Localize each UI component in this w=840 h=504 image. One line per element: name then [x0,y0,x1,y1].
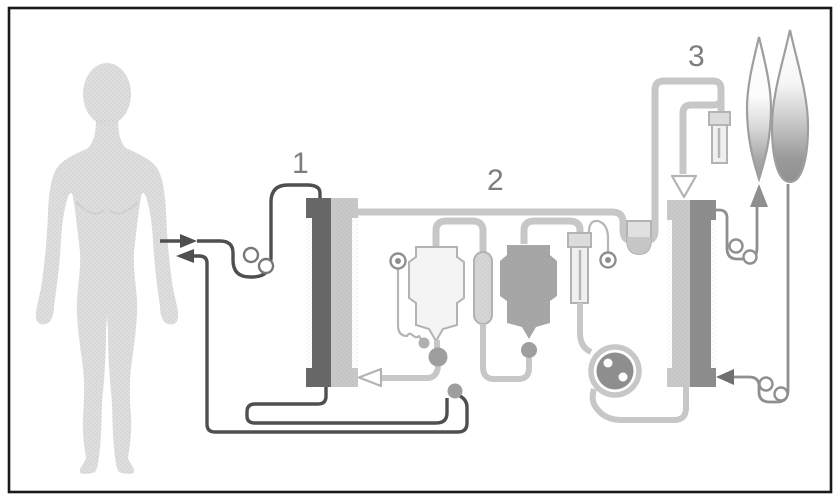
pump-guide-roller-icon [730,240,743,253]
pump-roller-icon [619,373,628,382]
pump-roller-icon [604,359,613,368]
label-step3: 3 [688,40,705,73]
inline-cup-chamber [627,221,651,254]
pump-guide-roller-icon [744,251,757,264]
return-junction-connector [448,384,463,399]
drip-chamber [568,233,591,303]
roller-clamp [521,342,537,358]
pressure-cartridge [709,112,730,163]
roller-clamp [429,348,448,367]
figure-canvas: 1 2 3 [0,0,840,504]
diagram-svg: 1 2 3 [0,0,840,504]
secondary-filter-column [667,200,716,387]
pump-guide-roller-icon [259,259,273,273]
pump-guide-roller-icon [244,248,258,262]
plasma-separator-column [306,198,358,387]
small-clamp [419,338,430,349]
pump-guide-roller-icon [775,388,788,401]
label-step2: 2 [487,164,504,197]
peristaltic-pump [597,353,634,390]
label-step1: 1 [292,147,309,180]
pump-guide-roller-icon [760,378,773,391]
